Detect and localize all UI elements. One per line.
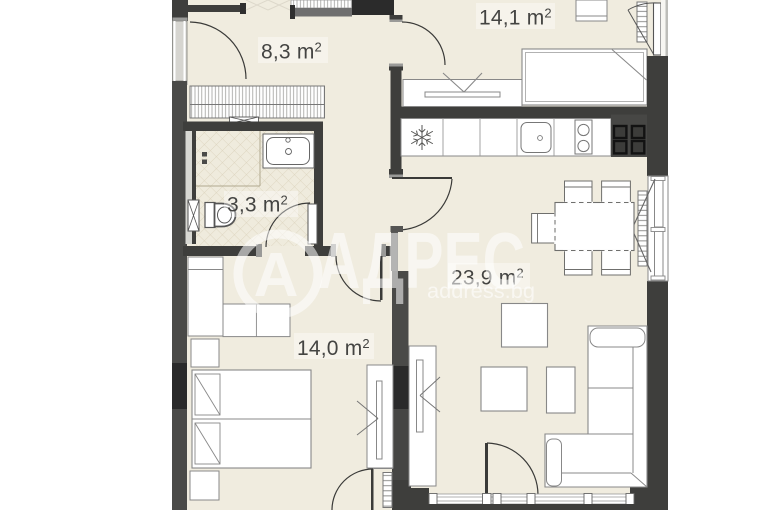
svg-text:8,3 m2: 8,3 m2: [261, 40, 322, 64]
svg-text:address.bg: address.bg: [427, 280, 535, 303]
svg-text:А: А: [254, 241, 299, 310]
svg-text:3,3 m2: 3,3 m2: [227, 193, 288, 217]
svg-text:14,1 m2: 14,1 m2: [479, 6, 552, 30]
svg-text:14,0 m2: 14,0 m2: [297, 336, 370, 360]
